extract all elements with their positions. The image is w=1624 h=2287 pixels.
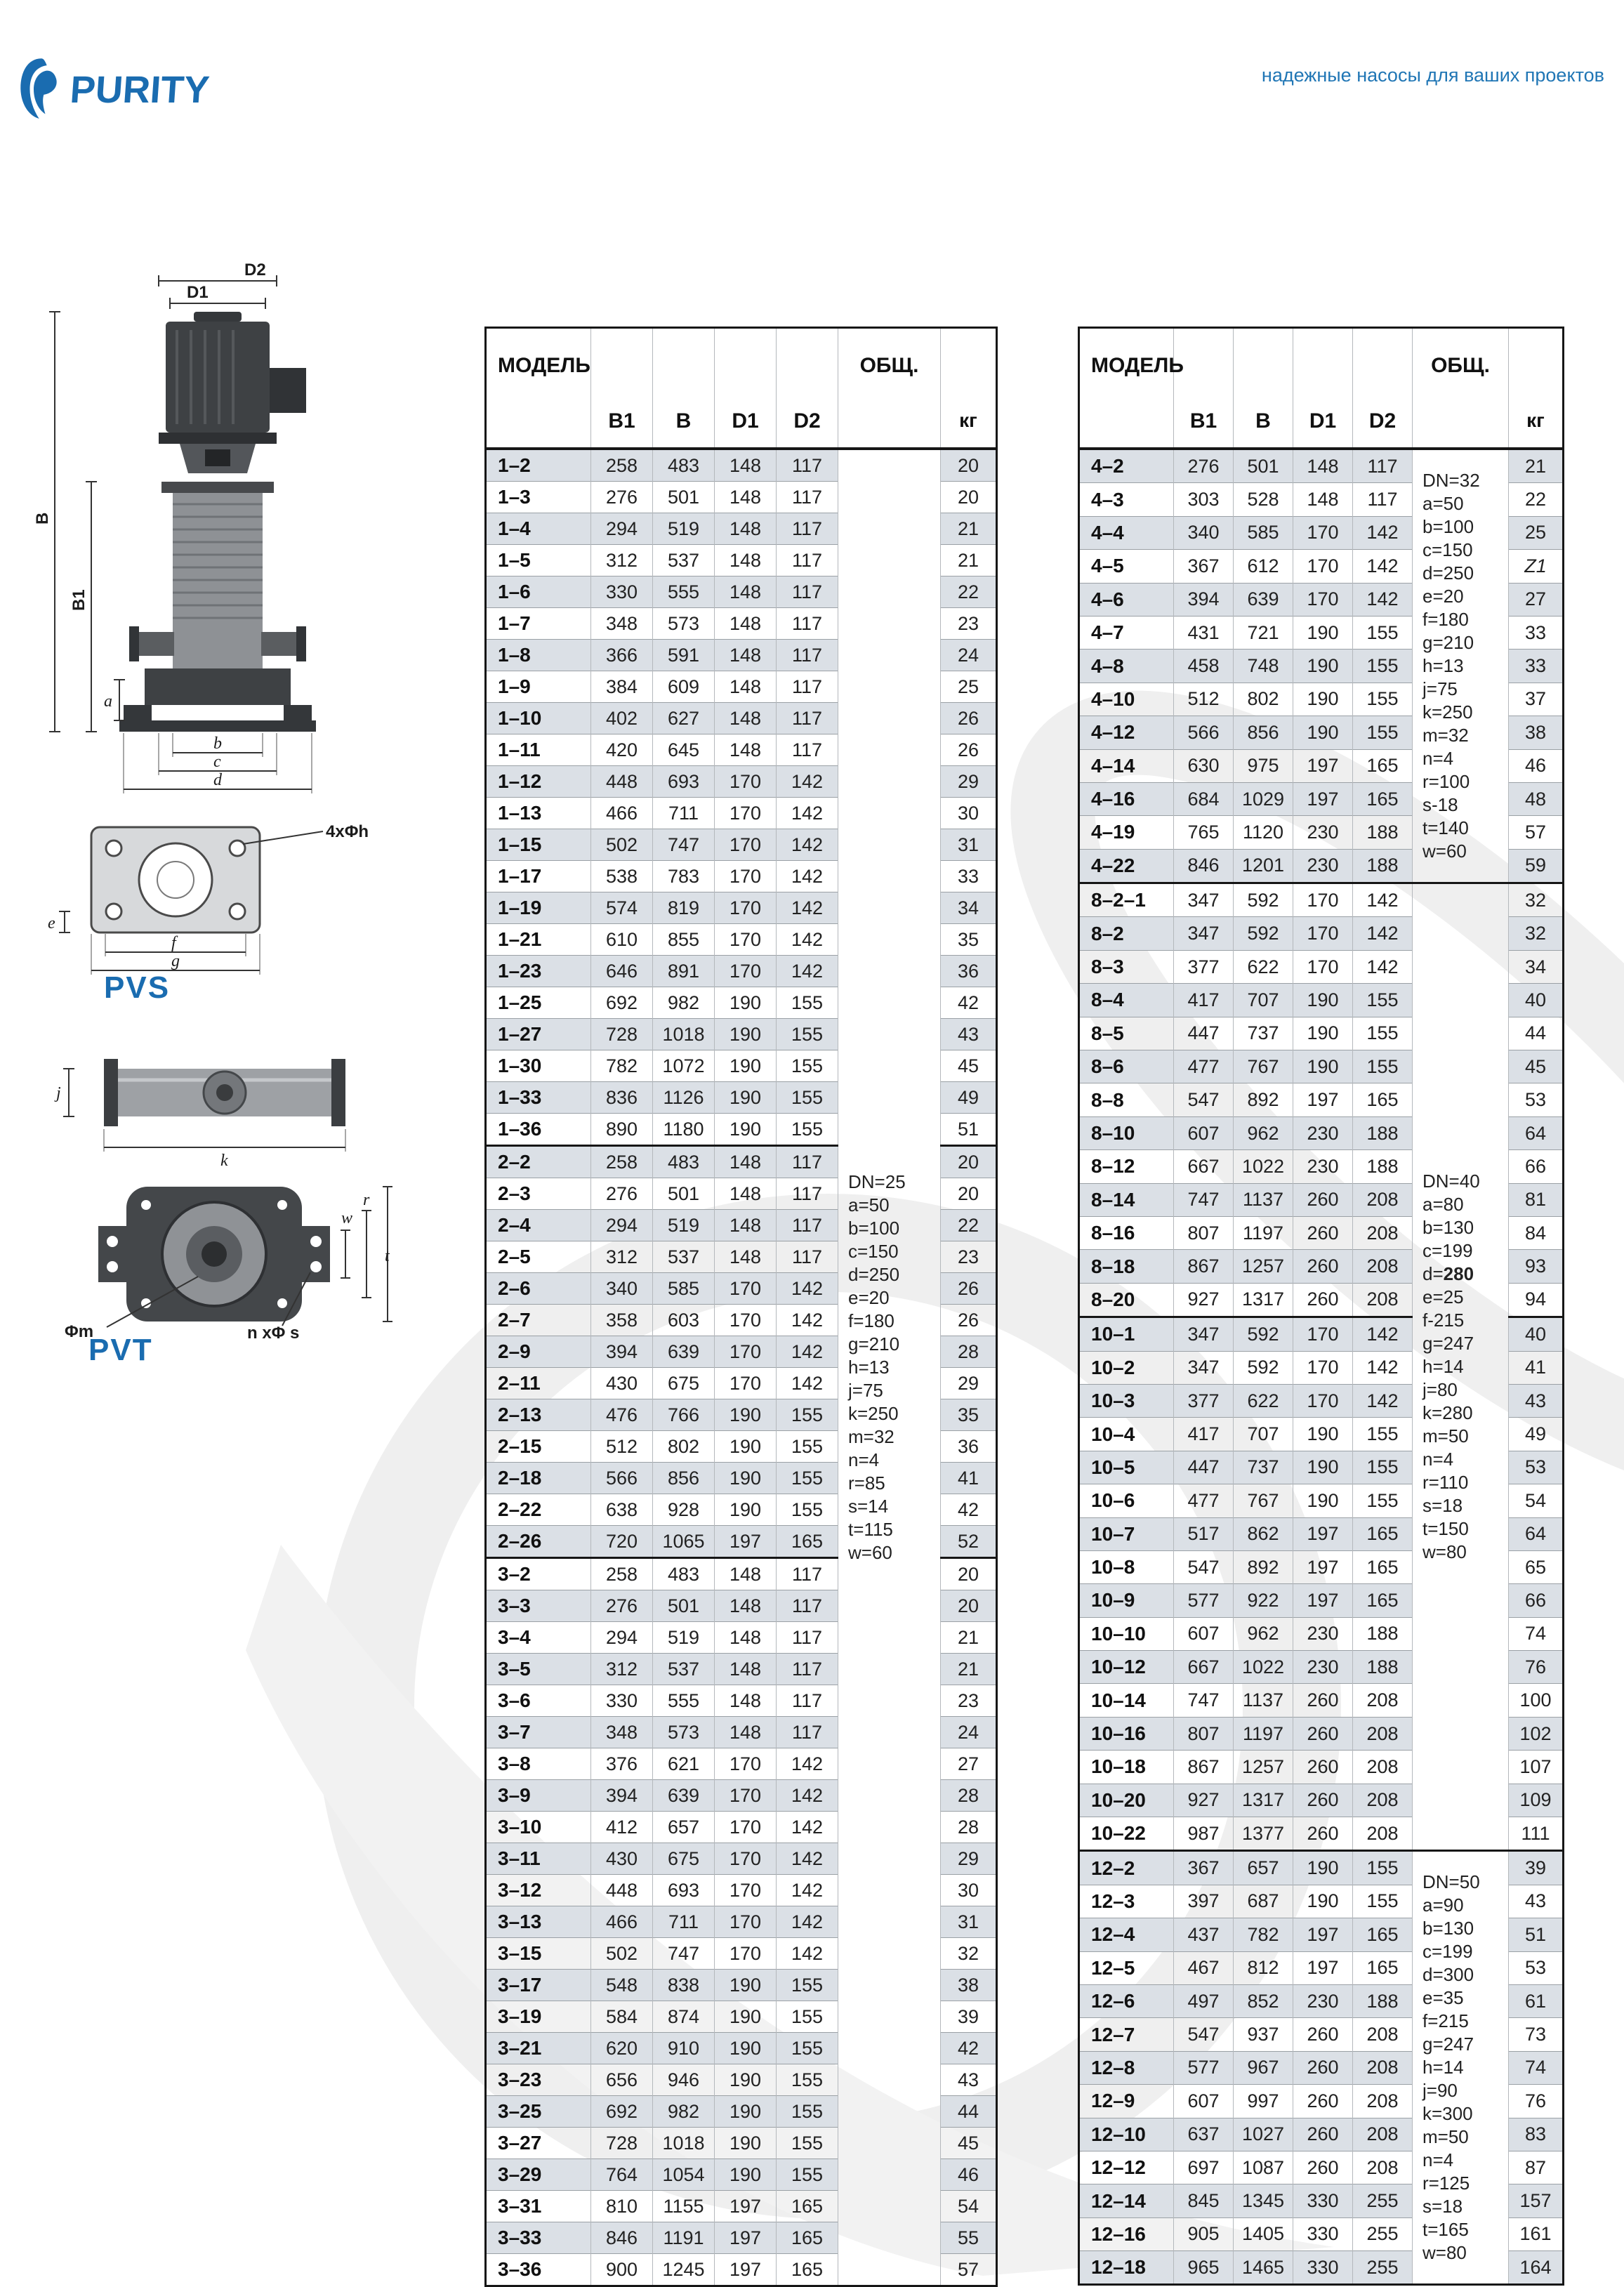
model-cell: 12–16 [1079, 2217, 1174, 2250]
weight-cell: 107 [1509, 1751, 1564, 1784]
dim-value-cell: 142 [1353, 516, 1413, 549]
dim-value-cell: 330 [591, 1685, 653, 1717]
dim-value-cell: 230 [1293, 849, 1353, 883]
weight-cell: 25 [941, 671, 997, 703]
model-cell: 3–5 [486, 1654, 591, 1685]
dim-value-cell: 165 [1353, 782, 1413, 815]
dim-value-cell: 555 [653, 576, 715, 608]
dim-value-cell: 807 [1174, 1717, 1234, 1750]
dim-value-cell: 197 [1293, 1083, 1353, 1116]
model-cell: 4–7 [1079, 616, 1174, 649]
model-cell: 12–18 [1079, 2251, 1174, 2285]
model-cell: 8–10 [1079, 1116, 1174, 1149]
dim-value-cell: 170 [715, 1368, 777, 1399]
model-cell: 4–22 [1079, 849, 1174, 883]
dim-value-cell: 1054 [653, 2159, 715, 2191]
dim-value-cell: 117 [1353, 449, 1413, 483]
dim-label-B: B [33, 513, 52, 525]
dim-value-cell: 190 [715, 2096, 777, 2128]
dim-value-cell: 1027 [1234, 2118, 1293, 2151]
dim-value-cell: 892 [1234, 1550, 1293, 1583]
weight-cell: 57 [1509, 816, 1564, 849]
dim-value-cell: 230 [1293, 1116, 1353, 1149]
model-cell: 4–6 [1079, 583, 1174, 616]
dim-value-cell: 1022 [1234, 1651, 1293, 1684]
weight-cell: 21 [941, 513, 997, 545]
model-cell: 1–23 [486, 956, 591, 987]
dim-value-cell: 170 [1293, 1351, 1353, 1384]
column-header-3: D1 [715, 328, 777, 449]
dim-value-cell: 142 [777, 1906, 838, 1938]
dim-value-cell: 170 [715, 1273, 777, 1305]
dim-value-cell: 394 [591, 1336, 653, 1368]
weight-cell: 21 [941, 1654, 997, 1685]
dim-value-cell: 340 [591, 1273, 653, 1305]
dim-value-cell: 728 [591, 2128, 653, 2159]
table-row: 4–2276501148117DN=32a=50b=100c=150d=250e… [1079, 449, 1564, 483]
dim-value-cell: 117 [777, 1654, 838, 1685]
dim-value-cell: 1155 [653, 2191, 715, 2222]
dim-value-cell: 592 [1234, 1351, 1293, 1384]
dim-value-cell: 867 [1174, 1250, 1234, 1283]
dim-value-cell: 347 [1174, 883, 1234, 917]
dim-value-cell: 188 [1353, 1116, 1413, 1149]
weight-cell: 20 [941, 1146, 997, 1178]
dim-value-cell: 142 [777, 798, 838, 829]
dim-value-cell: 430 [591, 1843, 653, 1875]
dim-value-cell: 612 [1234, 550, 1293, 583]
brand-tagline: надежные насосы для ваших проектов [1262, 65, 1604, 86]
dim-value-cell: 190 [715, 987, 777, 1019]
dim-value-cell: 208 [1353, 1216, 1413, 1249]
weight-cell: 161 [1509, 2217, 1564, 2250]
pvs-series-label: PVS [104, 970, 170, 1006]
model-cell: 2–13 [486, 1399, 591, 1431]
model-cell: 10–12 [1079, 1651, 1174, 1684]
dim-value-cell: 148 [715, 545, 777, 576]
model-cell: 3–6 [486, 1685, 591, 1717]
dim-value-cell: 190 [715, 1050, 777, 1082]
dim-value-cell: 783 [653, 861, 715, 892]
dim-value-cell: 693 [653, 766, 715, 798]
weight-cell: 46 [941, 2159, 997, 2191]
dim-value-cell: 483 [653, 1146, 715, 1178]
dim-value-cell: 155 [1353, 716, 1413, 749]
dim-value-cell: 208 [1353, 2018, 1413, 2051]
model-cell: 12–9 [1079, 2085, 1174, 2118]
model-cell: 8–4 [1079, 984, 1174, 1017]
dim-value-cell: 142 [777, 1748, 838, 1780]
weight-cell: 59 [1509, 849, 1564, 883]
weight-cell: 48 [1509, 782, 1564, 815]
dim-value-cell: 639 [1234, 583, 1293, 616]
dim-value-cell: 170 [715, 1780, 777, 1812]
weight-cell: 27 [1509, 583, 1564, 616]
dim-value-cell: 394 [1174, 583, 1234, 616]
model-cell: 3–23 [486, 2064, 591, 2096]
dim-value-cell: 620 [591, 2033, 653, 2064]
weight-cell: 27 [941, 1748, 997, 1780]
weight-cell: 36 [941, 956, 997, 987]
model-cell: 2–5 [486, 1241, 591, 1273]
dim-value-cell: 148 [715, 1717, 777, 1748]
dim-value-cell: 170 [715, 1875, 777, 1906]
weight-cell: 51 [1509, 1918, 1564, 1951]
dim-value-cell: 165 [1353, 1517, 1413, 1550]
dim-value-cell: 165 [1353, 1918, 1413, 1951]
dim-value-cell: 630 [1174, 749, 1234, 782]
model-cell: 2–18 [486, 1463, 591, 1494]
weight-cell: 26 [941, 734, 997, 766]
dim-value-cell: 347 [1174, 1317, 1234, 1351]
model-cell: 10–20 [1079, 1784, 1174, 1817]
dim-value-cell: 148 [715, 734, 777, 766]
header-row: МОДЕЛЬB1BD1D2ОБЩ.кг [1079, 328, 1564, 449]
dim-value-cell: 687 [1234, 1885, 1293, 1918]
dim-value-cell: 190 [715, 2128, 777, 2159]
model-cell: 2–3 [486, 1178, 591, 1210]
model-cell: 3–17 [486, 1970, 591, 2001]
weight-cell: Z1 [1509, 550, 1564, 583]
dim-value-cell: 707 [1234, 1418, 1293, 1451]
dim-value-cell: 836 [591, 1082, 653, 1114]
weight-cell: 164 [1509, 2251, 1564, 2285]
weight-cell: 29 [941, 1368, 997, 1399]
dim-value-cell: 190 [1293, 683, 1353, 716]
dim-value-cell: 347 [1174, 917, 1234, 950]
dim-value-cell: 260 [1293, 1216, 1353, 1249]
weight-cell: 29 [941, 766, 997, 798]
weight-cell: 76 [1509, 1651, 1564, 1684]
weight-cell: 51 [941, 1114, 997, 1146]
dim-value-cell: 965 [1174, 2251, 1234, 2285]
dim-value-cell: 148 [715, 1622, 777, 1654]
dim-value-cell: 117 [777, 640, 838, 671]
weight-cell: 94 [1509, 1283, 1564, 1317]
model-cell: 3–8 [486, 1748, 591, 1780]
weight-cell: 74 [1509, 1617, 1564, 1650]
weight-cell: 35 [941, 1399, 997, 1431]
weight-cell: 30 [941, 798, 997, 829]
model-cell: 12–2 [1079, 1851, 1174, 1885]
dim-value-cell: 1087 [1234, 2151, 1293, 2184]
model-cell: 3–36 [486, 2254, 591, 2286]
model-cell: 2–6 [486, 1273, 591, 1305]
connection-spec-note: DN=32a=50b=100c=150d=250e=20f=180g=210h=… [1413, 449, 1509, 883]
model-cell: 8–16 [1079, 1216, 1174, 1249]
model-cell: 12–5 [1079, 1951, 1174, 1984]
dim-value-cell: 782 [591, 1050, 653, 1082]
dim-value-cell: 170 [715, 924, 777, 956]
model-cell: 1–33 [486, 1082, 591, 1114]
dim-value-cell: 165 [1353, 1083, 1413, 1116]
dim-value-cell: 190 [715, 1399, 777, 1431]
dim-value-cell: 117 [777, 608, 838, 640]
dim-value-cell: 946 [653, 2064, 715, 2096]
dim-value-cell: 330 [1293, 2217, 1353, 2250]
dim-value-cell: 190 [1293, 616, 1353, 649]
dim-value-cell: 1345 [1234, 2184, 1293, 2217]
dim-label-c: c [213, 753, 221, 771]
dim-value-cell: 707 [1234, 984, 1293, 1017]
model-cell: 4–5 [1079, 550, 1174, 583]
model-cell: 10–8 [1079, 1550, 1174, 1583]
dim-value-cell: 852 [1234, 1984, 1293, 2017]
model-cell: 1–19 [486, 892, 591, 924]
weight-cell: 21 [1509, 449, 1564, 483]
dim-value-cell: 260 [1293, 2118, 1353, 2151]
dim-value-cell: 142 [777, 1273, 838, 1305]
model-cell: 4–8 [1079, 650, 1174, 683]
dim-value-cell: 547 [1174, 1550, 1234, 1583]
dim-value-cell: 577 [1174, 2051, 1234, 2084]
dim-value-cell: 1137 [1234, 1684, 1293, 1717]
dim-value-cell: 303 [1174, 483, 1234, 516]
weight-cell: 38 [1509, 716, 1564, 749]
dim-value-cell: 348 [591, 608, 653, 640]
dim-value-cell: 697 [1174, 2151, 1234, 2184]
weight-cell: 37 [1509, 683, 1564, 716]
dim-value-cell: 142 [777, 1843, 838, 1875]
dim-value-cell: 667 [1174, 1150, 1234, 1183]
dim-value-cell: 165 [1353, 1550, 1413, 1583]
dim-value-cell: 417 [1174, 984, 1234, 1017]
dim-value-cell: 255 [1353, 2184, 1413, 2217]
model-cell: 10–16 [1079, 1717, 1174, 1750]
dim-value-cell: 367 [1174, 1851, 1234, 1885]
dim-value-cell: 260 [1293, 1817, 1353, 1851]
dim-value-cell: 188 [1353, 1984, 1413, 2017]
weight-cell: 22 [941, 1210, 997, 1241]
dim-value-cell: 982 [653, 987, 715, 1019]
dim-value-cell: 155 [777, 2033, 838, 2064]
dim-value-cell: 142 [1353, 550, 1413, 583]
dim-value-cell: 142 [777, 924, 838, 956]
dim-value-cell: 1072 [653, 1050, 715, 1082]
model-cell: 2–26 [486, 1526, 591, 1558]
weight-cell: 20 [941, 482, 997, 513]
dim-value-cell: 260 [1293, 1183, 1353, 1216]
weight-cell: 61 [1509, 1984, 1564, 2017]
dim-value-cell: 607 [1174, 2085, 1234, 2118]
dim-value-cell: 728 [591, 1019, 653, 1050]
dim-value-cell: 646 [591, 956, 653, 987]
dim-value-cell: 155 [1353, 1451, 1413, 1484]
weight-cell: 49 [941, 1082, 997, 1114]
weight-cell: 39 [941, 2001, 997, 2033]
weight-cell: 39 [1509, 1851, 1564, 1885]
dim-value-cell: 905 [1174, 2217, 1234, 2250]
dim-value-cell: 197 [1293, 1517, 1353, 1550]
dim-value-cell: 155 [777, 1019, 838, 1050]
dim-value-cell: 366 [591, 640, 653, 671]
model-cell: 1–30 [486, 1050, 591, 1082]
dim-value-cell: 330 [591, 576, 653, 608]
dim-value-cell: 573 [653, 1717, 715, 1748]
dim-label-e: e [48, 914, 55, 932]
model-cell: 1–36 [486, 1114, 591, 1146]
model-cell: 1–8 [486, 640, 591, 671]
column-header-3: D1 [1293, 328, 1353, 449]
column-header-4: D2 [777, 328, 838, 449]
weight-cell: 45 [1509, 1050, 1564, 1083]
dim-value-cell: 1257 [1234, 1250, 1293, 1283]
dim-value-cell: 148 [715, 1146, 777, 1178]
weight-cell: 32 [1509, 883, 1564, 917]
dim-value-cell: 190 [715, 1494, 777, 1526]
dim-value-cell: 627 [653, 703, 715, 734]
dim-value-cell: 230 [1293, 1150, 1353, 1183]
dim-value-cell: 501 [653, 482, 715, 513]
dim-value-cell: 466 [591, 798, 653, 829]
model-cell: 3–33 [486, 2222, 591, 2254]
dim-value-cell: 170 [715, 956, 777, 987]
dim-value-cell: 260 [1293, 1684, 1353, 1717]
model-cell: 4–19 [1079, 816, 1174, 849]
dim-value-cell: 656 [591, 2064, 653, 2096]
dim-value-cell: 165 [777, 2222, 838, 2254]
dim-value-cell: 155 [1353, 650, 1413, 683]
weight-cell: 24 [941, 640, 997, 671]
dim-value-cell: 447 [1174, 1017, 1234, 1050]
dim-value-cell: 967 [1234, 2051, 1293, 2084]
weight-cell: 20 [941, 449, 997, 482]
dim-value-cell: 142 [1353, 950, 1413, 983]
model-cell: 8–8 [1079, 1083, 1174, 1116]
model-cell: 1–13 [486, 798, 591, 829]
dim-value-cell: 142 [777, 1368, 838, 1399]
dim-value-cell: 170 [715, 1938, 777, 1970]
dim-value-cell: 607 [1174, 1116, 1234, 1149]
dim-value-cell: 197 [1293, 1951, 1353, 1984]
dim-value-cell: 155 [777, 1970, 838, 2001]
dim-value-cell: 197 [715, 2222, 777, 2254]
weight-cell: 102 [1509, 1717, 1564, 1750]
dim-value-cell: 155 [1353, 1017, 1413, 1050]
weight-cell: 33 [1509, 616, 1564, 649]
dim-value-cell: 190 [1293, 650, 1353, 683]
dim-value-cell: 190 [1293, 1484, 1353, 1517]
dim-value-cell: 812 [1234, 1951, 1293, 1984]
model-cell: 3–10 [486, 1812, 591, 1843]
dim-value-cell: 548 [591, 1970, 653, 2001]
dim-value-cell: 430 [591, 1368, 653, 1399]
dim-value-cell: 982 [653, 2096, 715, 2128]
dim-value-cell: 190 [715, 1463, 777, 1494]
dim-value-cell: 208 [1353, 1684, 1413, 1717]
dim-value-cell: 412 [591, 1812, 653, 1843]
weight-cell: 25 [1509, 516, 1564, 549]
dim-value-cell: 667 [1174, 1651, 1234, 1684]
dim-value-cell: 1137 [1234, 1183, 1293, 1216]
dim-value-cell: 1065 [653, 1526, 715, 1558]
model-cell: 8–5 [1079, 1017, 1174, 1050]
model-cell: 10–2 [1079, 1351, 1174, 1384]
weight-cell: 42 [941, 1494, 997, 1526]
dim-value-cell: 142 [777, 956, 838, 987]
dim-value-cell: 675 [653, 1368, 715, 1399]
dim-value-cell: 155 [1353, 1050, 1413, 1083]
model-cell: 8–12 [1079, 1150, 1174, 1183]
dim-value-cell: 622 [1234, 1384, 1293, 1417]
weight-cell: 55 [941, 2222, 997, 2254]
weight-cell: 65 [1509, 1550, 1564, 1583]
dim-value-cell: 260 [1293, 1250, 1353, 1283]
weight-cell: 42 [941, 2033, 997, 2064]
dim-value-cell: 188 [1353, 1617, 1413, 1650]
weight-cell: 157 [1509, 2184, 1564, 2217]
dim-value-cell: 1022 [1234, 1150, 1293, 1183]
dim-value-cell: 170 [1293, 883, 1353, 917]
weight-cell: 34 [941, 892, 997, 924]
dim-value-cell: 190 [715, 1082, 777, 1114]
dim-value-cell: 537 [653, 1654, 715, 1685]
connection-spec-note: DN=40a=80b=130c=199d=280e=25f-215g=247h=… [1413, 883, 1509, 1851]
model-cell: 1–5 [486, 545, 591, 576]
model-cell: 4–12 [1079, 716, 1174, 749]
dim-value-cell: 312 [591, 1654, 653, 1685]
dim-value-cell: 148 [715, 449, 777, 482]
dim-value-cell: 230 [1293, 816, 1353, 849]
dim-value-cell: 592 [1234, 917, 1293, 950]
weight-cell: 22 [1509, 483, 1564, 516]
dim-value-cell: 148 [715, 1685, 777, 1717]
dim-value-cell: 1317 [1234, 1784, 1293, 1817]
model-cell: 10–7 [1079, 1517, 1174, 1550]
dim-label-r: r [363, 1191, 370, 1209]
dim-value-cell: 117 [777, 1685, 838, 1717]
dim-value-cell: 165 [1353, 1584, 1413, 1617]
weight-cell: 100 [1509, 1684, 1564, 1717]
dim-value-cell: 260 [1293, 2151, 1353, 2184]
dim-value-cell: 737 [1234, 1017, 1293, 1050]
dim-value-cell: 170 [715, 1305, 777, 1336]
dim-value-cell: 170 [715, 1843, 777, 1875]
dim-value-cell: 1197 [1234, 1216, 1293, 1249]
dim-value-cell: 962 [1234, 1617, 1293, 1650]
dim-label-w: w [341, 1209, 352, 1227]
model-cell: 3–21 [486, 2033, 591, 2064]
dim-value-cell: 1465 [1234, 2251, 1293, 2285]
dim-label-d1: D1 [187, 283, 209, 302]
dim-value-cell: 117 [777, 545, 838, 576]
weight-cell: 28 [941, 1336, 997, 1368]
dim-value-cell: 501 [653, 1178, 715, 1210]
dim-value-cell: 420 [591, 734, 653, 766]
dim-value-cell: 142 [1353, 1384, 1413, 1417]
weight-cell: 34 [1509, 950, 1564, 983]
dim-value-cell: 155 [777, 2096, 838, 2128]
dim-label-d2: D2 [244, 261, 266, 279]
dim-value-cell: 477 [1174, 1484, 1234, 1517]
model-cell: 12–8 [1079, 2051, 1174, 2084]
dim-value-cell: 190 [1293, 1451, 1353, 1484]
weight-cell: 33 [941, 861, 997, 892]
dim-value-cell: 537 [653, 1241, 715, 1273]
dim-value-cell: 197 [715, 2254, 777, 2286]
dim-value-cell: 197 [1293, 1584, 1353, 1617]
dim-value-cell: 148 [1293, 449, 1353, 483]
dim-value-cell: 155 [777, 987, 838, 1019]
dim-value-cell: 437 [1174, 1918, 1234, 1951]
dim-value-cell: 862 [1234, 1517, 1293, 1550]
dim-value-cell: 190 [1293, 1418, 1353, 1451]
dim-value-cell: 197 [715, 1526, 777, 1558]
weight-cell: 32 [1509, 917, 1564, 950]
dim-value-cell: 208 [1353, 2085, 1413, 2118]
model-cell: 3–27 [486, 2128, 591, 2159]
model-cell: 1–3 [486, 482, 591, 513]
